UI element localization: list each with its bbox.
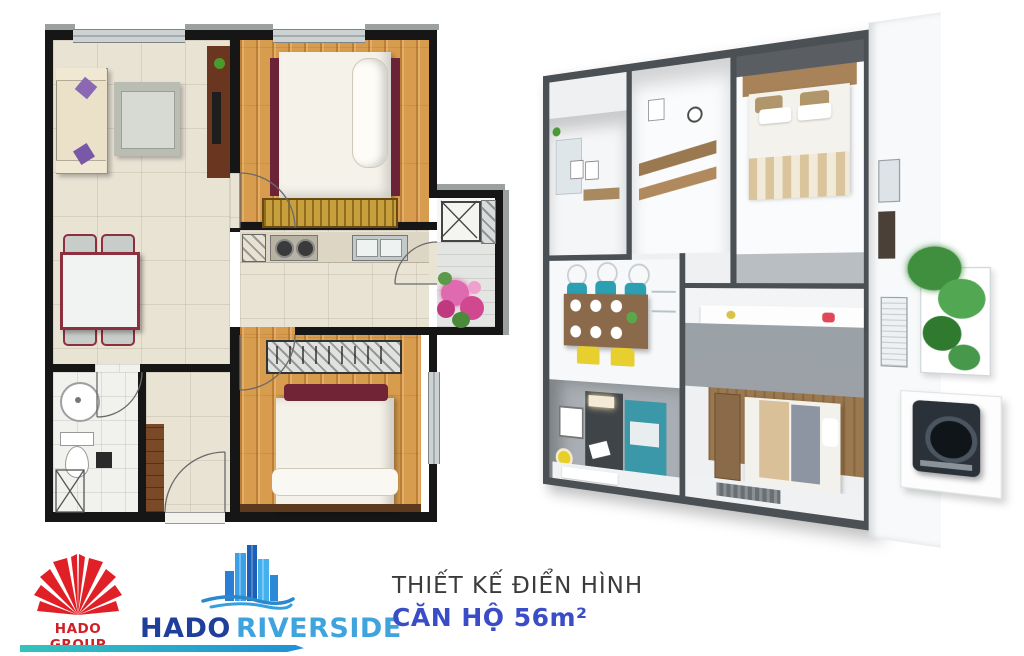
iso-plate: [611, 300, 622, 313]
iso-chair-yellow: [577, 346, 600, 365]
footer: HADO GROUP HADO RIVERSIDE: [0, 545, 1024, 656]
iso-bath-frame: [570, 160, 583, 180]
hado-riverside-logo: HADO RIVERSIDE: [140, 545, 350, 645]
floor-plan-3d: [543, 29, 873, 531]
iso-fruit-bowl: [726, 311, 735, 319]
iso-exterior-window-blinds: [881, 297, 908, 368]
hado-group-fan-icon: [32, 551, 124, 617]
iso-bed2-blanket-gray: [791, 404, 820, 484]
iso-shelf-lamp: [589, 395, 615, 408]
swoosh-divider: [20, 645, 304, 652]
iso-plant-leaves: [938, 279, 986, 319]
iso-master-pillow-white: [798, 102, 832, 120]
iso-bath-vanity: [584, 187, 620, 200]
iso-glass-shelf: [652, 291, 676, 293]
hado-riverside-word1: HADO: [140, 613, 231, 644]
apartment-typical-design-poster: HADO GROUP HADO RIVERSIDE: [0, 0, 1024, 656]
iso-plate: [570, 299, 581, 311]
iso-master-pillow-white: [759, 107, 791, 125]
iso-plate: [611, 326, 622, 339]
iso-master-blanket: [749, 151, 850, 200]
iso-vase: [626, 312, 637, 324]
iso-bed2-blanket-beige: [759, 400, 789, 481]
iso-plate: [590, 300, 601, 312]
caption: THIẾT KẾ ĐIỂN HÌNH CĂN HỘ 56m²: [392, 573, 643, 632]
iso-plate: [590, 326, 601, 339]
iso-bed2-wardrobe: [714, 393, 740, 482]
caption-line1: THIẾT KẾ ĐIỂN HÌNH: [392, 573, 643, 599]
floor-plan-2d: [0, 0, 520, 540]
iso-plate: [570, 325, 581, 337]
iso-entry-frame: [648, 98, 665, 121]
hado-group-logo: HADO GROUP: [30, 551, 126, 643]
hado-riverside-building-icon: [195, 545, 295, 613]
iso-bed2-pillow: [822, 418, 838, 448]
iso-kettle-red: [822, 313, 835, 323]
iso-chair-yellow: [611, 347, 635, 366]
hado-riverside-word2: RIVERSIDE: [236, 613, 402, 644]
iso-exterior-window: [878, 211, 895, 259]
iso-living-frame: [559, 405, 584, 439]
iso-exterior-frame: [878, 159, 900, 203]
iso-teal-desk-sheet: [630, 421, 659, 447]
door-swing-overlay: [0, 0, 520, 540]
caption-line2: CĂN HỘ 56m²: [392, 603, 643, 632]
iso-bath-frame: [585, 160, 599, 180]
